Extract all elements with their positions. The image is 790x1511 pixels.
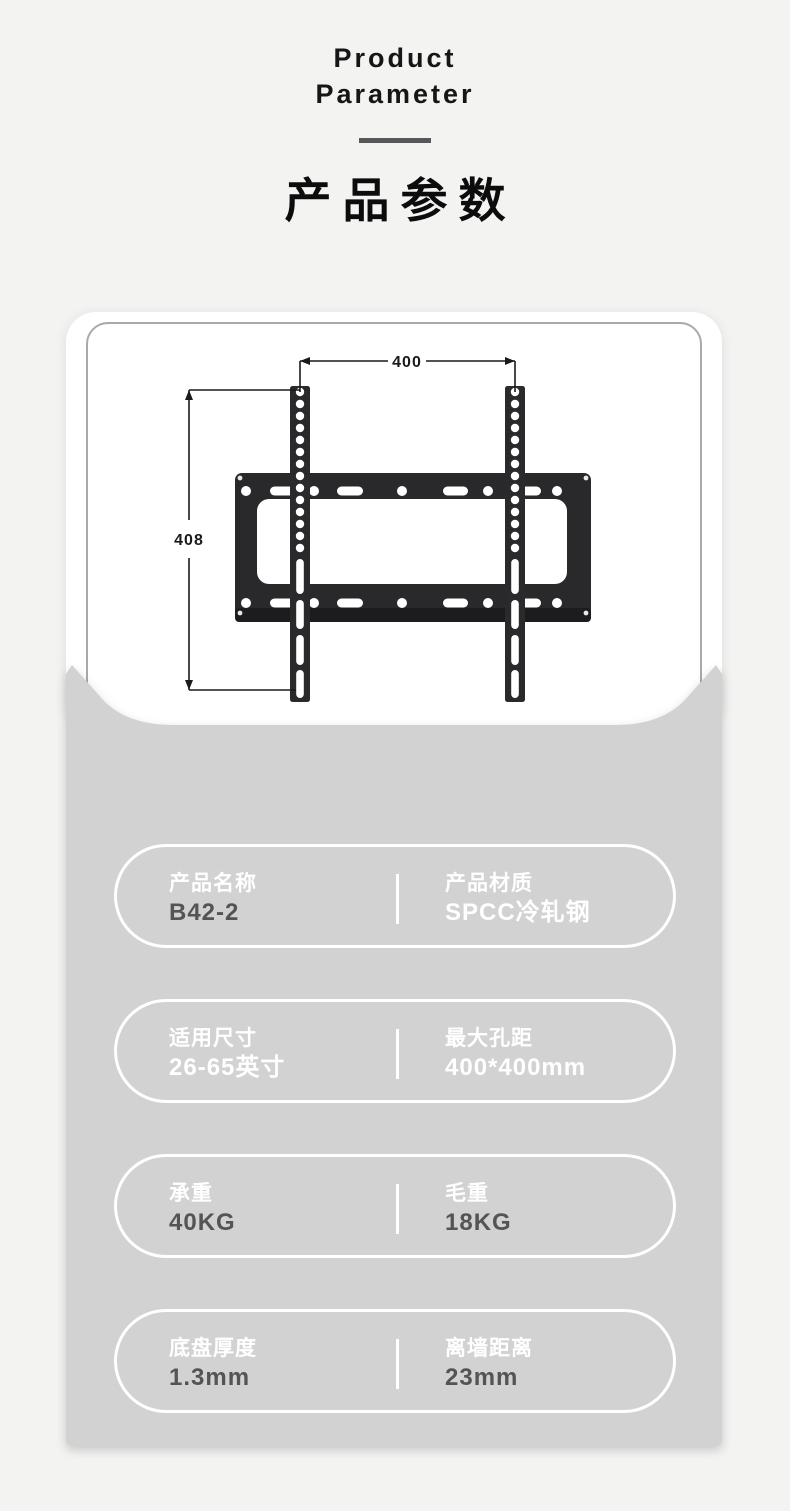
spec-cell-fit-size: 适用尺寸 26-65英寸 (169, 1025, 285, 1083)
spec-pill-1: 产品名称 B42-2 产品材质 SPCC冷轧钢 (114, 844, 676, 948)
spec-value: 40KG (169, 1207, 236, 1238)
spec-cell-wall-distance: 离墙距离 23mm (445, 1335, 533, 1393)
spec-value: 23mm (445, 1362, 533, 1393)
spec-pill-3: 承重 40KG 毛重 18KG (114, 1154, 676, 1258)
pill-divider (396, 1339, 399, 1389)
dim-arrow-left (300, 357, 310, 365)
spec-cell-plate-thickness: 底盘厚度 1.3mm (169, 1335, 257, 1393)
spec-label: 产品材质 (445, 870, 591, 897)
page-title-en: Product Parameter (0, 40, 790, 112)
wall-plate (235, 473, 591, 622)
spec-list: 产品名称 B42-2 产品材质 SPCC冷轧钢 适用尺寸 26-65英寸 最大孔… (66, 665, 722, 1446)
page-title-en-line1: Product (0, 40, 790, 76)
spec-label: 最大孔距 (445, 1025, 586, 1052)
spec-label: 产品名称 (169, 870, 257, 897)
spec-pill-2: 适用尺寸 26-65英寸 最大孔距 400*400mm (114, 999, 676, 1103)
page-title-en-line2: Parameter (0, 76, 790, 112)
spec-label: 适用尺寸 (169, 1025, 285, 1052)
pill-divider (396, 874, 399, 924)
dimension-label-height: 408 (174, 532, 204, 549)
spec-cell-max-pattern: 最大孔距 400*400mm (445, 1025, 586, 1083)
spec-pill-4: 底盘厚度 1.3mm 离墙距离 23mm (114, 1309, 676, 1413)
dimension-label-width: 400 (392, 354, 422, 371)
page-root: Product Parameter 产品参数 (0, 0, 790, 1511)
spec-value: SPCC冷轧钢 (445, 897, 591, 928)
spec-cell-material: 产品材质 SPCC冷轧钢 (445, 870, 591, 928)
pill-divider (396, 1184, 399, 1234)
title-divider-bar (359, 138, 431, 143)
spec-cell-load: 承重 40KG (169, 1180, 236, 1238)
dim-arrow-right (505, 357, 515, 365)
spec-value: B42-2 (169, 897, 257, 928)
spec-cell-product-name: 产品名称 B42-2 (169, 870, 257, 928)
spec-label: 底盘厚度 (169, 1335, 257, 1362)
spec-label: 承重 (169, 1180, 236, 1207)
spec-value: 400*400mm (445, 1052, 586, 1083)
spec-value: 18KG (445, 1207, 512, 1238)
spec-value: 1.3mm (169, 1362, 257, 1393)
pill-divider (396, 1029, 399, 1079)
spec-value: 26-65英寸 (169, 1052, 285, 1083)
dim-arrow-top (185, 390, 193, 400)
spec-cell-gross-weight: 毛重 18KG (445, 1180, 512, 1238)
spec-label: 离墙距离 (445, 1335, 533, 1362)
page-title-zh: 产品参数 (0, 172, 790, 230)
spec-label: 毛重 (445, 1180, 512, 1207)
